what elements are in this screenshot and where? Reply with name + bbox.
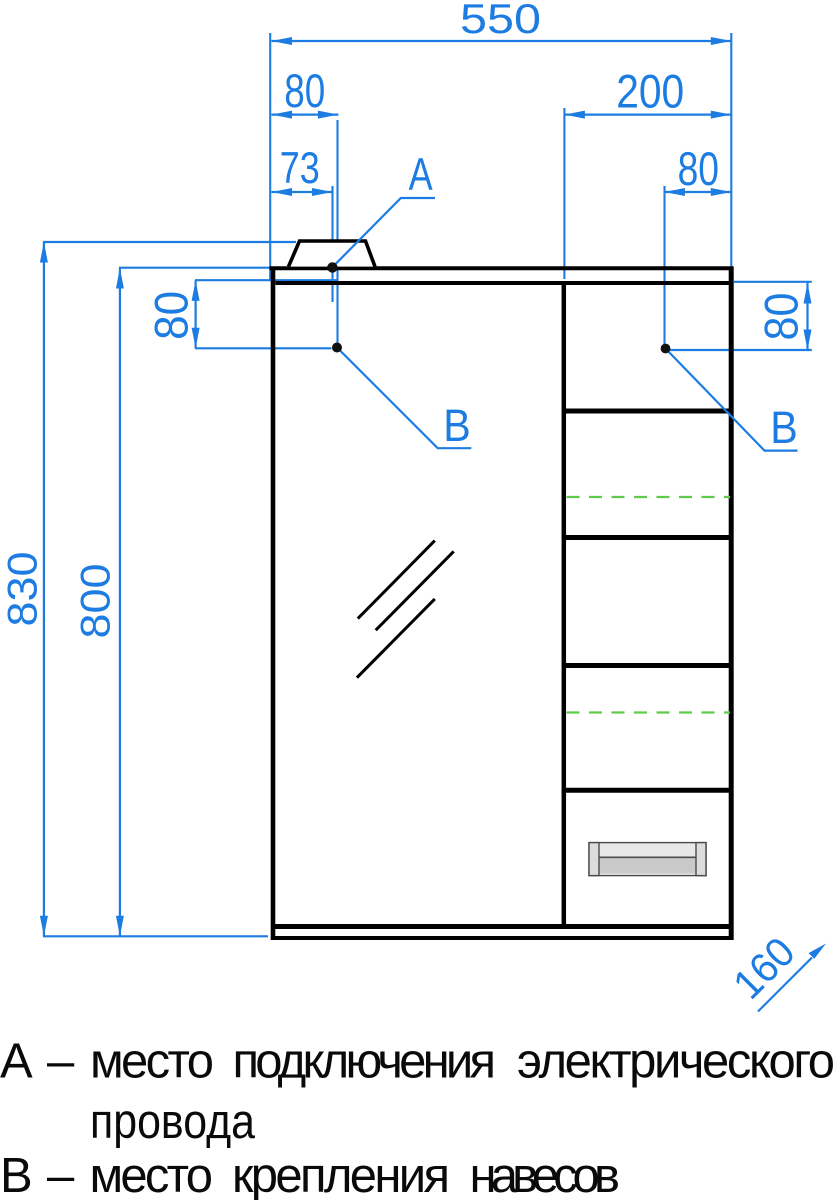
svg-text:А–местоподключенияэлектрическо: А–местоподключенияэлектрического — [0, 1035, 835, 1089]
svg-text:80: 80 — [678, 142, 719, 195]
svg-text:B: B — [770, 402, 798, 453]
svg-text:A: A — [409, 149, 433, 200]
svg-text:B: B — [443, 400, 471, 451]
svg-text:80: 80 — [284, 65, 325, 118]
svg-text:830: 830 — [0, 552, 46, 627]
svg-text:80: 80 — [755, 293, 808, 341]
svg-text:80: 80 — [145, 291, 198, 340]
svg-text:200: 200 — [616, 66, 684, 119]
svg-text:73: 73 — [280, 144, 320, 193]
svg-text:550: 550 — [460, 0, 541, 42]
svg-text:160: 160 — [724, 928, 804, 1008]
svg-text:В–местокреплениянавесов: В–местокреплениянавесов — [0, 1149, 620, 1200]
svg-text:провода: провода — [90, 1095, 256, 1149]
svg-text:800: 800 — [72, 564, 119, 639]
